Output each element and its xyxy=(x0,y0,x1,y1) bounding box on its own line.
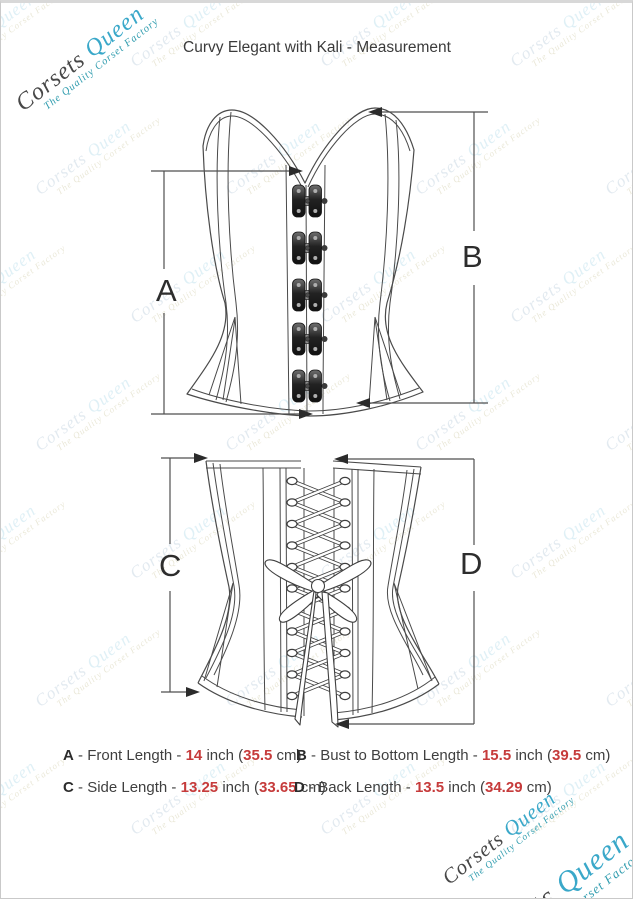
measurement-text-d: D - Back Length - 13.5 inch (34.29 cm) xyxy=(294,779,552,796)
measurement-d-cm: 34.29 xyxy=(485,779,523,796)
dimension-label-b: B xyxy=(462,241,483,272)
measurement-text-b: B - Bust to Bottom Length - 15.5 inch (3… xyxy=(296,747,610,764)
measurement-text-c: C - Side Length - 13.25 inch (33.65 cm) xyxy=(63,779,326,796)
measurement-text-a: A - Front Length - 14 inch (35.5 cm) xyxy=(63,747,302,764)
dimension-label-c: C xyxy=(159,550,181,581)
measurement-b-letter: B xyxy=(296,747,307,764)
brand-logo-bottom-corner: Corsets Queen The Quality Corset Factory xyxy=(453,859,633,899)
brand-logo-bottom-right: Corsets Queen The Quality Corset Factory xyxy=(429,813,604,846)
arrow-b-bottom xyxy=(356,398,370,408)
brand-name-primary: Corsets xyxy=(465,880,563,899)
measurement-a-cm: 35.5 xyxy=(243,747,272,764)
arrow-d-top xyxy=(334,454,348,464)
dimension-label-d: D xyxy=(460,548,482,579)
measurement-b-inches: 15.5 xyxy=(482,747,511,764)
busk-clasps xyxy=(293,185,328,402)
measurement-d-name: Back Length xyxy=(318,779,401,796)
measurement-b-name: Bust to Bottom Length xyxy=(320,747,468,764)
measurement-c-name: Side Length xyxy=(87,779,167,796)
measurement-d-letter: D xyxy=(294,779,305,796)
arrow-c-bottom xyxy=(186,687,200,697)
measurement-d-inches: 13.5 xyxy=(415,779,444,796)
measurement-a-inches: 14 xyxy=(186,747,203,764)
dimension-d-lines xyxy=(348,459,474,724)
measurement-c-letter: C xyxy=(63,779,74,796)
measurement-c-inches: 13.25 xyxy=(181,779,219,796)
measurement-a-name: Front Length xyxy=(87,747,172,764)
measurement-diagram xyxy=(1,3,633,899)
dimension-label-a: A xyxy=(156,275,177,306)
measurement-sheet: Corsets QueenThe Quality Corset FactoryC… xyxy=(0,0,633,899)
front-view-illustration xyxy=(187,108,423,416)
measurement-c-cm: 33.65 xyxy=(259,779,297,796)
measurement-a-letter: A xyxy=(63,747,74,764)
back-view-illustration xyxy=(198,461,439,727)
measurement-b-cm: 39.5 xyxy=(552,747,581,764)
